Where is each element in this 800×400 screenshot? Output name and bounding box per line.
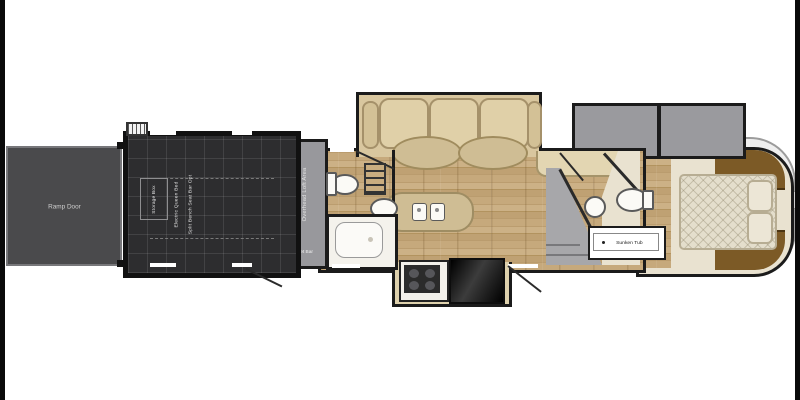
- garage-option-1-label: Electric Queen Bed: [173, 181, 179, 227]
- bed-pillow-top: [747, 180, 773, 212]
- refrigerator: [449, 258, 505, 304]
- queen-bed: [679, 174, 777, 250]
- storage-box: Storage Box: [140, 178, 168, 220]
- island-sink-right: [430, 203, 445, 221]
- bath2-sink: [584, 196, 606, 218]
- ottoman-right: [458, 136, 528, 170]
- main-window-top-left: [330, 148, 354, 152]
- island-sink-left: [412, 203, 427, 221]
- bath1-toilet-tank: [326, 172, 337, 196]
- storage-box-label: Storage Box: [151, 185, 156, 213]
- bathtub-label: Sunken Tub: [616, 239, 642, 245]
- ramp-hinge-top: [117, 142, 125, 149]
- ottoman-left: [392, 136, 462, 170]
- garage-option-2-wrap: Split Bench Seat Bar Opt: [182, 148, 198, 260]
- ramp-hinge-bottom: [117, 260, 125, 267]
- right-edge-bar: [795, 0, 800, 400]
- overhead-loft-label: Overhead Loft Area: [301, 167, 307, 221]
- step-line-2: [546, 254, 590, 256]
- main-window-bottom-left: [332, 264, 360, 268]
- garage-window-bottom-right: [232, 263, 252, 267]
- loft-ladder: [364, 163, 386, 195]
- bath1-shower: [326, 214, 398, 270]
- bedroom-slideout-right: [658, 103, 746, 159]
- garage-option-2-label: Split Bench Seat Bar Opt: [187, 174, 193, 234]
- garage-window-top-left: [150, 131, 176, 135]
- floorplan-canvas: Overhead Loft Area Wet Bar Storage Box E…: [0, 0, 800, 400]
- ramp-door: Ramp Door: [6, 146, 122, 266]
- bathtub: Sunken Tub: [588, 226, 666, 260]
- garage-area: Storage Box Electric Queen Bed Split Ben…: [123, 131, 301, 278]
- bathtub-label-bullet: [602, 241, 605, 244]
- garage-window-bottom-left: [150, 263, 176, 267]
- bed-pillow-bottom: [747, 212, 773, 244]
- sofa-armrest-right: [527, 101, 542, 149]
- stove-cooktop: [399, 260, 449, 302]
- left-edge-bar: [0, 0, 5, 400]
- ramp-door-label: Ramp Door: [48, 202, 81, 209]
- kitchen-bumpout: [392, 262, 512, 307]
- stove-burners: [409, 269, 419, 278]
- sofa-armrest-left: [362, 101, 379, 149]
- bathtub-label-box: Sunken Tub: [593, 233, 659, 251]
- garage-roof-vent: [126, 122, 148, 136]
- garage-window-top-right: [232, 131, 252, 135]
- bath2-toilet-tank: [642, 190, 654, 210]
- step-line-1: [546, 244, 580, 246]
- shower-pan: [335, 222, 383, 258]
